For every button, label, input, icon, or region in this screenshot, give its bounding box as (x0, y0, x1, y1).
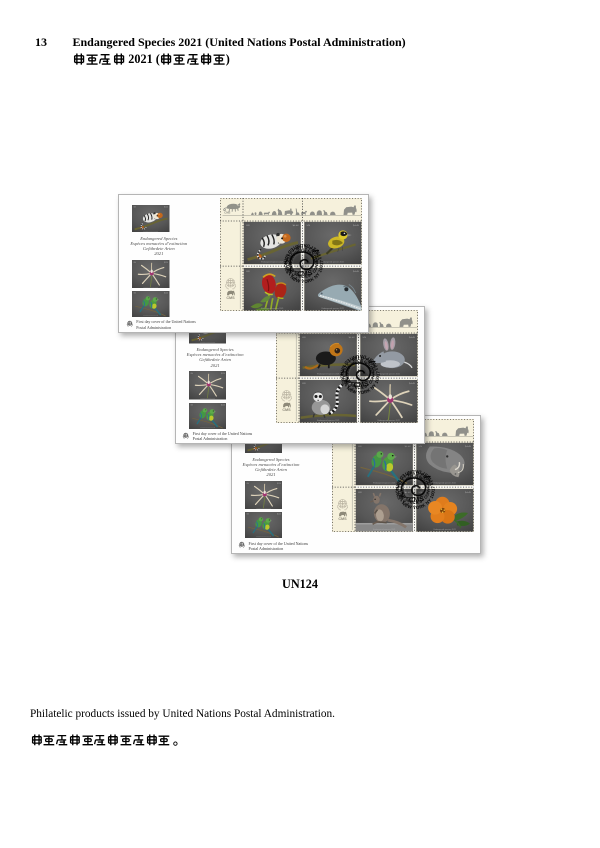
svg-text:CMS: CMS (224, 210, 230, 214)
